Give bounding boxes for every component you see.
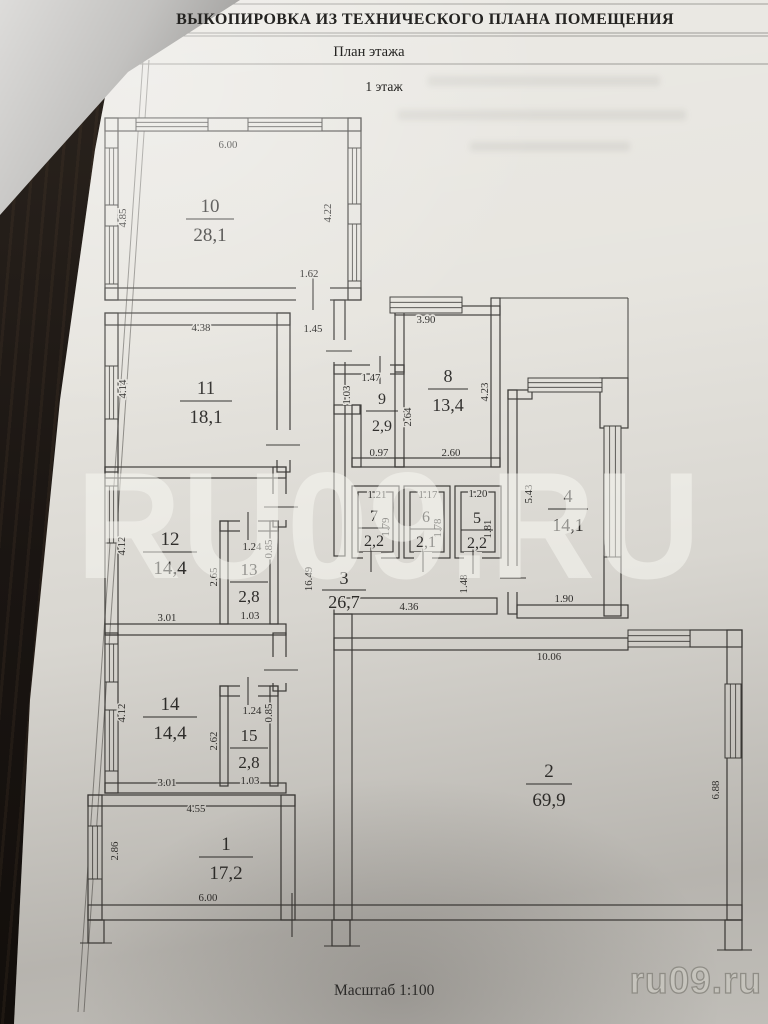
dim-label-d9_bottom: 0.97 — [370, 447, 389, 459]
room-r5-area: 2,2 — [467, 535, 487, 552]
dim-label-d12_right: 2.65 — [208, 568, 220, 587]
room-r3-area: 26,7 — [328, 592, 360, 612]
room-r2-number: 2 — [544, 761, 554, 782]
dim-label-d8_top: 3.90 — [417, 314, 436, 326]
dim-label-d4_left: 5.43 — [523, 485, 535, 504]
dim-label-d1_top: 4.55 — [187, 803, 206, 815]
dim-label-d7_top: 1.21 — [368, 489, 387, 501]
room-r6-area: 2,1 — [416, 534, 436, 551]
room-r12-number: 12 — [161, 529, 180, 550]
room-r3-number: 3 — [340, 568, 349, 588]
dim-label-d5_top: 1.20 — [469, 488, 488, 500]
room-r4-area: 14,1 — [552, 515, 584, 535]
dim-label-d2_top: 10.06 — [537, 651, 562, 663]
room-r7-area: 2,2 — [364, 533, 384, 550]
room-r8-number: 8 — [444, 366, 453, 386]
dim-label-d9_top: 1.47 — [362, 372, 381, 384]
room-r15-area: 2,8 — [238, 753, 259, 772]
dim-label-d8_right: 4.23 — [479, 383, 491, 402]
scale-label: Масштаб 1:100 — [334, 982, 434, 1000]
room-labels-group: 1028,11118,11214,4132,81414,4152,8117,22… — [143, 196, 588, 884]
dim-label-d4_bottom: 1.90 — [555, 593, 574, 605]
room-r11-area: 18,1 — [189, 407, 222, 428]
dim-label-d14_right: 2.62 — [208, 732, 220, 751]
dim-label-d11_left: 4.14 — [117, 379, 129, 398]
dim-label-d13_side: 0.85 — [263, 540, 275, 559]
dim-label-d15_top: 1.24 — [243, 705, 262, 717]
dim-label-d6_top: 1.17 — [419, 489, 438, 501]
dim-label-d14_bottom: 3.01 — [158, 777, 177, 789]
dim-label-d_corr_top: 1.45 — [304, 323, 323, 335]
dim-label-d14_left: 4.12 — [116, 704, 128, 723]
dim-label-d13_top: 1.24 — [243, 541, 262, 553]
dim-label-d12_bottom: 3.01 — [158, 612, 177, 624]
dim-label-d13_bottom: 1.03 — [241, 610, 260, 622]
room-r2-area: 69,9 — [532, 790, 565, 811]
dim-label-d8_left: 2.64 — [402, 407, 414, 426]
walls-group — [88, 118, 742, 950]
room-r12-area: 14,4 — [153, 558, 187, 579]
room-r4-number: 4 — [564, 486, 573, 506]
dim-label-d15_bottom: 1.03 — [241, 775, 260, 787]
room-r10-number: 10 — [201, 196, 220, 217]
page-frame-lines — [78, 4, 768, 1012]
dim-label-d15_side: 0.85 — [263, 704, 275, 723]
room-r6-number: 6 — [422, 509, 430, 526]
room-r11-number: 11 — [197, 378, 215, 399]
room-r1-number: 1 — [221, 834, 231, 855]
windows-group — [88, 118, 741, 879]
floor-plan-drawing: 6.004.854.221.624.384.141.454.122.653.01… — [0, 0, 768, 1024]
dim-label-d3_door: 1.48 — [458, 575, 470, 594]
dim-label-d10_right: 4.22 — [322, 204, 334, 223]
room-r9-number: 9 — [378, 391, 386, 408]
room-r1-area: 17,2 — [209, 863, 242, 884]
dim-label-d10_door: 1.62 — [300, 268, 319, 280]
dimension-labels-group: 6.004.854.221.624.384.141.454.122.653.01… — [109, 139, 722, 904]
dim-label-d3_bottom: 4.36 — [400, 601, 419, 613]
dim-label-d10_top: 6.00 — [219, 139, 238, 151]
room-r7-number: 7 — [370, 508, 378, 525]
document-title: ВЫКОПИРОВКА ИЗ ТЕХНИЧЕСКОГО ПЛАНА ПОМЕЩЕ… — [92, 11, 758, 29]
room-r8-area: 13,4 — [432, 395, 464, 415]
dim-label-d3_height: 16.49 — [303, 567, 315, 591]
room-r15-number: 15 — [241, 726, 258, 745]
room-r14-number: 14 — [161, 694, 181, 715]
room-r13-number: 13 — [241, 560, 258, 579]
dim-label-d1_bottom: 6.00 — [199, 892, 218, 904]
dim-label-d1_left: 2.86 — [109, 841, 121, 860]
dim-label-d8_bottom: 2.60 — [442, 447, 461, 459]
room-r5-number: 5 — [473, 510, 481, 527]
room-r9-area: 2,9 — [372, 418, 392, 435]
room-r14-area: 14,4 — [153, 723, 187, 744]
document-subtitle: План этажа — [60, 44, 678, 61]
room-r10-area: 28,1 — [193, 225, 226, 246]
photographed-document: 6.004.854.221.624.384.141.454.122.653.01… — [0, 0, 768, 1024]
dim-label-d11_top: 4.38 — [192, 322, 211, 334]
dim-label-d2_right: 6.88 — [710, 781, 722, 800]
dim-label-d10_left: 4.85 — [117, 209, 129, 228]
dim-label-d9_left: 1.03 — [341, 386, 353, 405]
floor-label: 1 этаж — [60, 79, 708, 95]
dim-label-d12_left: 4.12 — [116, 537, 128, 556]
room-r13-area: 2,8 — [238, 587, 259, 606]
